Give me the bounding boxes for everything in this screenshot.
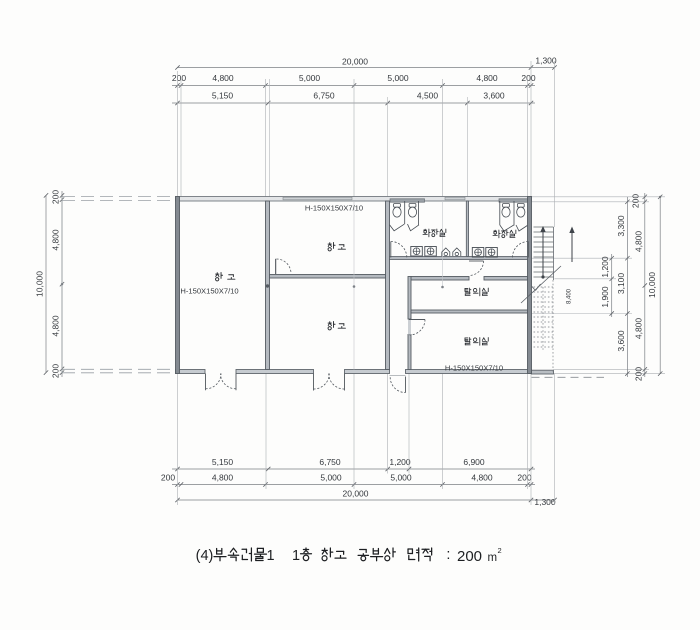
svg-text:(4): (4) — [196, 548, 214, 564]
svg-text:3,600: 3,600 — [616, 330, 626, 352]
svg-text:1: 1 — [292, 548, 300, 564]
svg-text:4,800: 4,800 — [476, 73, 498, 83]
svg-text:200: 200 — [51, 364, 61, 378]
svg-text:200: 200 — [631, 194, 641, 208]
svg-text:5,000: 5,000 — [390, 473, 412, 483]
svg-text:200: 200 — [161, 473, 175, 483]
svg-text:4,800: 4,800 — [212, 73, 234, 83]
svg-text:8,400: 8,400 — [567, 288, 573, 304]
svg-text:1,200: 1,200 — [389, 457, 411, 467]
svg-text:H-150X150X7/10: H-150X150X7/10 — [445, 364, 503, 373]
svg-text:3,600: 3,600 — [483, 91, 505, 101]
svg-text:5,000: 5,000 — [320, 473, 342, 483]
svg-text:4,800: 4,800 — [51, 315, 61, 337]
svg-text:200: 200 — [517, 473, 531, 483]
svg-text:20,000: 20,000 — [343, 489, 369, 499]
svg-text:4,800: 4,800 — [212, 473, 234, 483]
svg-text:5,150: 5,150 — [212, 91, 234, 101]
svg-text:m: m — [488, 552, 498, 564]
svg-text:200: 200 — [521, 73, 535, 83]
svg-text:1,300: 1,300 — [535, 56, 557, 66]
svg-text:1,300: 1,300 — [534, 497, 556, 507]
svg-text:1: 1 — [266, 548, 274, 564]
svg-text:4,800: 4,800 — [634, 318, 644, 340]
svg-text:H-150X150X7/10: H-150X150X7/10 — [305, 204, 363, 213]
svg-text:200: 200 — [172, 73, 186, 83]
svg-text:3,100: 3,100 — [616, 273, 626, 295]
svg-text::: : — [446, 547, 450, 563]
svg-text:200: 200 — [51, 190, 61, 204]
svg-text:2: 2 — [498, 546, 502, 555]
svg-text:6,750: 6,750 — [319, 457, 341, 467]
svg-text:6,750: 6,750 — [313, 91, 335, 101]
svg-text:20,000: 20,000 — [342, 57, 368, 67]
svg-text:10,000: 10,000 — [35, 271, 45, 297]
svg-text:1,900: 1,900 — [600, 286, 610, 308]
svg-text:6,900: 6,900 — [463, 457, 485, 467]
svg-text:4,800: 4,800 — [634, 231, 644, 253]
svg-text:5,000: 5,000 — [387, 73, 409, 83]
svg-text:1,200: 1,200 — [600, 256, 610, 278]
svg-text:200: 200 — [457, 548, 482, 565]
svg-text:10,000: 10,000 — [647, 272, 657, 298]
svg-text:H-150X150X7/10: H-150X150X7/10 — [180, 287, 238, 296]
svg-text:5,000: 5,000 — [299, 73, 321, 83]
svg-text:200: 200 — [634, 367, 644, 381]
svg-text:4,800: 4,800 — [471, 473, 493, 483]
svg-text:4,800: 4,800 — [51, 229, 61, 251]
svg-text:5,150: 5,150 — [212, 457, 234, 467]
svg-text:4,500: 4,500 — [417, 91, 439, 101]
svg-text:3,300: 3,300 — [616, 215, 626, 237]
